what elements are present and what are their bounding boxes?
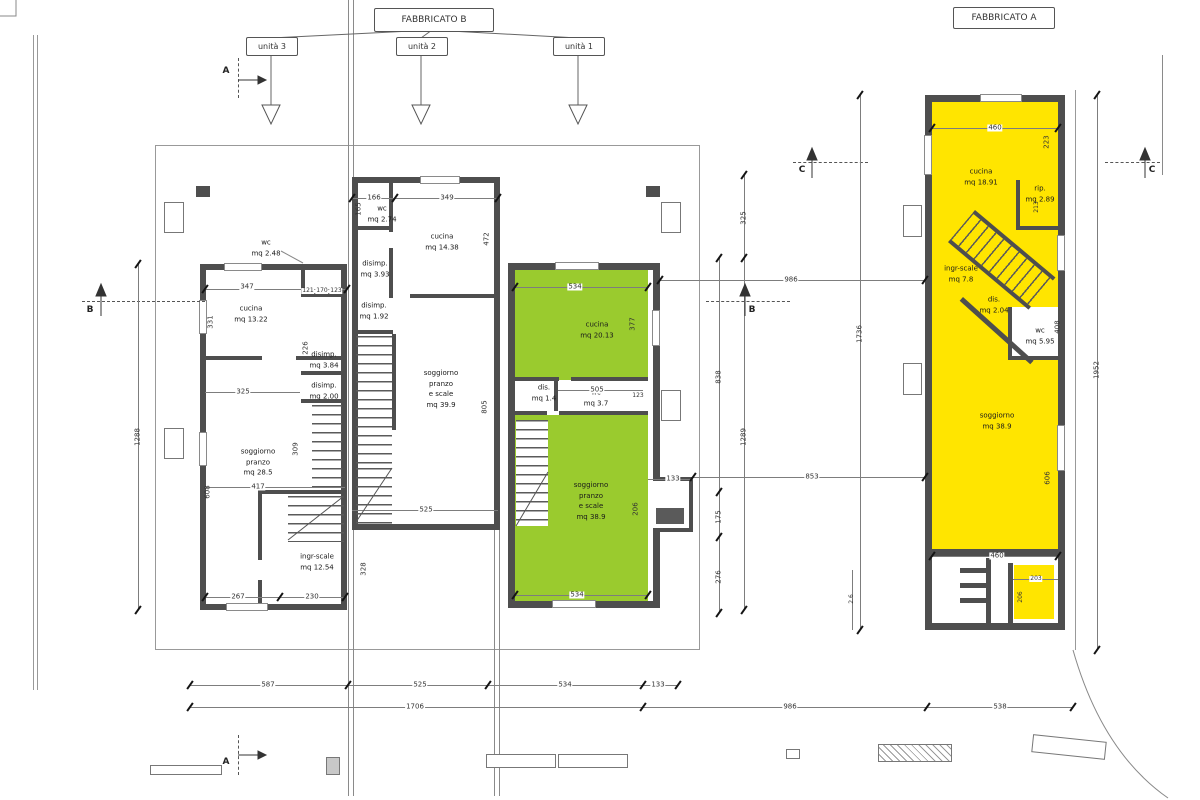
- dim-tick: [1093, 645, 1100, 654]
- boundary-pillar: [661, 390, 681, 421]
- wall-segment: [960, 583, 988, 588]
- boundary-pillar: [661, 202, 681, 233]
- dim-label: 175: [716, 509, 723, 524]
- staircase: [312, 405, 342, 487]
- dim-label: 534: [567, 284, 582, 291]
- arrow-down-icon: [412, 105, 430, 124]
- floor-plan: FABBRICATO B unità 3 unità 2 unità 1 FAB…: [0, 0, 1200, 800]
- section-c-cutline: [1105, 162, 1160, 163]
- dim-label: 1289: [741, 427, 748, 447]
- wall-segment: [960, 568, 988, 573]
- room-label-fa-dis: dis. mq 2.04: [979, 295, 1008, 316]
- section-c-arrowhead: [807, 148, 817, 160]
- wall-segment: [653, 532, 660, 608]
- dim-label: 276: [716, 569, 723, 584]
- dim-label: 226: [303, 341, 310, 354]
- bump-feature: [656, 508, 684, 524]
- dim-label: 525: [412, 682, 427, 689]
- dim-label: 1288: [135, 427, 142, 447]
- site-element: [1031, 734, 1106, 760]
- dim-tick: [134, 605, 141, 614]
- wall-segment: [960, 598, 988, 603]
- dim-label: 1952: [1094, 360, 1101, 380]
- section-a-cutline: [238, 735, 239, 775]
- dim-label: 203: [1029, 576, 1042, 582]
- wall-segment: [258, 490, 262, 560]
- room-label-u3-soggiorno: soggiorno pranzo mq 28.5: [241, 446, 276, 478]
- section-letter-a: A: [223, 757, 230, 767]
- wall-segment: [1008, 356, 1062, 360]
- unit-pointer-arrows: [262, 105, 587, 124]
- dim-label: 123: [631, 393, 644, 399]
- boundary-pillar: [903, 205, 922, 237]
- window-symbol: [1057, 425, 1065, 471]
- dim-tick: [740, 605, 747, 614]
- boundary-pillar: [164, 428, 184, 459]
- wall-segment: [689, 477, 693, 532]
- dim-label: 230: [304, 594, 319, 601]
- dim-label: 206: [1018, 591, 1024, 602]
- staircase: [516, 420, 548, 526]
- dim-label: 838: [716, 369, 723, 384]
- dim-label: 587: [260, 682, 275, 689]
- wall-segment: [389, 248, 393, 298]
- room-label-u3-cucina: cucina mq 13.22: [234, 304, 268, 325]
- tree-drop-lines: [271, 55, 578, 105]
- wall-segment: [1016, 226, 1062, 230]
- wall-segment: [571, 377, 648, 381]
- window-symbol: [552, 600, 596, 608]
- site-element: [326, 757, 340, 775]
- unit-3-tag-label: unità 3: [258, 42, 286, 51]
- dimension-line: [719, 258, 720, 613]
- dim-label: 1736: [857, 324, 864, 344]
- dim-label: 525: [418, 507, 433, 514]
- dim-label: 460: [989, 553, 1004, 560]
- dim-label: 331: [208, 315, 215, 328]
- dim-label: 2.6: [849, 594, 855, 604]
- boundary-line: [1162, 55, 1163, 175]
- dim-label: 805: [482, 400, 489, 413]
- staircase: [288, 496, 344, 542]
- dim-tick: [715, 608, 722, 617]
- wall-segment: [206, 356, 262, 360]
- wall-segment: [392, 334, 396, 430]
- room-label-u2-wc: wc mq 2.74: [367, 204, 396, 225]
- room-label-u3-disimp1: disimp. mq 3.84: [309, 350, 338, 371]
- dim-label: 213: [1034, 201, 1040, 212]
- section-letter-b: B: [749, 305, 756, 315]
- site-edge-line: [37, 35, 38, 690]
- site-edge-line-a: [1075, 90, 1076, 650]
- boundary-pillar: [903, 363, 922, 395]
- dim-label: 534: [557, 682, 572, 689]
- window-symbol: [652, 310, 660, 346]
- corner-mark: [0, 0, 16, 16]
- dim-label: 608: [205, 485, 212, 498]
- arrow-down-icon: [569, 105, 587, 124]
- dim-label: 408: [1055, 320, 1062, 333]
- fabbricato-b-title: FABBRICATO B: [401, 15, 466, 25]
- dimension-line: [744, 175, 745, 610]
- dim-tick: [674, 680, 681, 689]
- site-element: [786, 749, 800, 759]
- wall-segment: [1008, 307, 1012, 356]
- section-line-aa: [348, 0, 349, 796]
- dim-label: 328: [361, 562, 368, 575]
- staircase: [356, 336, 392, 468]
- wall-segment: [925, 623, 1065, 630]
- section-c-cutline: [793, 162, 868, 163]
- section-a-arrowhead: [258, 76, 266, 84]
- dim-label: 460: [987, 125, 1002, 132]
- room-label-fa-wc: wc mq 5.95: [1025, 326, 1054, 347]
- dim-label: 853: [804, 474, 819, 481]
- room-label-u3-wc: wc mq 2.48: [251, 238, 280, 259]
- room-label-fa-ingresso: ingr-scale mq 7.8: [944, 264, 978, 285]
- room-label-fa-soggiorno: soggiorno mq 38.9: [980, 411, 1015, 432]
- window-symbol: [1057, 235, 1065, 271]
- section-letter-a: A: [223, 66, 230, 76]
- section-letter-c: C: [799, 165, 806, 175]
- wall-segment: [515, 377, 559, 381]
- unit-2-tag: unità 2: [396, 37, 448, 56]
- unit-1-tag: unità 1: [553, 37, 605, 56]
- room-label-u1-soggiorno: soggiorno pranzo e scale mq 38.9: [574, 480, 609, 522]
- window-symbol: [924, 135, 932, 175]
- dim-label: 165: [356, 202, 363, 215]
- dim-label: 349: [439, 195, 454, 202]
- section-letter-b: B: [87, 305, 94, 315]
- section-a-cutline: [238, 58, 239, 98]
- site-edge-line: [33, 35, 34, 690]
- dimension-line: [190, 707, 1073, 708]
- wall-segment: [200, 604, 347, 610]
- dim-label: 472: [484, 232, 491, 245]
- dim-tick: [856, 625, 863, 634]
- site-element-hatched: [878, 744, 952, 762]
- dim-label: 538: [992, 704, 1007, 711]
- unit-3-tag: unità 3: [246, 37, 298, 56]
- room-label-fa-rip: rip. mq 2.89: [1025, 184, 1054, 205]
- room-label-u3-disimp2: disimp. mq 2.00: [309, 381, 338, 402]
- dim-label: 325: [235, 389, 250, 396]
- dim-label: 606: [1045, 471, 1052, 484]
- wall-segment: [410, 294, 494, 298]
- dimension-line: [860, 95, 861, 630]
- dim-label: 534: [569, 592, 584, 599]
- wall-segment: [515, 411, 547, 415]
- room-label-u3-ingresso: ingr-scale mq 12.54: [300, 552, 334, 573]
- dim-label: 206: [633, 502, 640, 515]
- arrow-down-icon: [262, 105, 280, 124]
- dim-label: 325: [741, 210, 748, 225]
- room-label-u2-soggiorno: soggiorno pranzo e scale mq 39.9: [424, 368, 459, 410]
- dim-label: 347: [239, 284, 254, 291]
- dim-label: 377: [630, 317, 637, 330]
- unit-2-tag-label: unità 2: [408, 42, 436, 51]
- wall-segment: [301, 371, 345, 375]
- pier-mark: [646, 186, 660, 197]
- wall-segment: [358, 226, 393, 230]
- dim-label: 123: [329, 288, 342, 294]
- wall-segment: [653, 263, 660, 481]
- wall-segment: [358, 330, 393, 334]
- window-symbol: [226, 603, 268, 611]
- wall-segment: [559, 411, 648, 415]
- dimension-line: [205, 597, 345, 598]
- fabbricato-b-title-box: FABBRICATO B: [374, 8, 494, 32]
- dim-label: 133: [665, 476, 680, 483]
- wall-segment: [494, 177, 500, 530]
- dim-label: 267: [230, 594, 245, 601]
- fabbricato-a-title-box: FABBRICATO A: [953, 7, 1055, 29]
- section-b-cutline: [82, 301, 205, 302]
- window-symbol: [555, 262, 599, 270]
- dimension-line: [205, 392, 300, 393]
- site-element: [150, 765, 222, 775]
- dim-label: 166: [366, 195, 381, 202]
- section-b-arrowhead: [740, 284, 750, 296]
- dim-tick: [1069, 702, 1076, 711]
- wall-segment: [258, 580, 262, 604]
- staircase: [356, 468, 392, 524]
- wall-segment: [1008, 563, 1013, 623]
- dim-label: 309: [293, 442, 300, 455]
- wall-segment: [508, 263, 515, 608]
- room-label-u2-disimp2: disimp. mq 1.92: [359, 301, 388, 322]
- room-label-u1-dis: dis. mq 1.4: [532, 383, 557, 404]
- window-symbol: [980, 94, 1022, 102]
- room-label-fa-cucina: cucina mq 18.91: [964, 167, 998, 188]
- site-element: [486, 754, 556, 768]
- dim-label: 133: [650, 682, 665, 689]
- pier-mark: [196, 186, 210, 197]
- room-label-u2-disimp1: disimp. mq 3.93: [360, 259, 389, 280]
- site-element: [558, 754, 628, 768]
- wall-segment: [1016, 180, 1020, 230]
- dim-label: 121: [301, 288, 314, 294]
- dim-label: 223: [1044, 135, 1051, 148]
- dim-label: 986: [782, 704, 797, 711]
- wall-segment: [258, 490, 345, 494]
- dim-label: 986: [783, 277, 798, 284]
- window-symbol: [224, 263, 262, 271]
- section-c-arrowhead: [1140, 148, 1150, 160]
- boundary-pillar: [164, 202, 184, 233]
- section-letter-c: C: [1149, 165, 1156, 175]
- dim-label: 1706: [405, 704, 425, 711]
- room-label-u2-cucina: cucina mq 14.38: [425, 232, 459, 253]
- site-curve: [1073, 650, 1168, 798]
- dim-label: 505: [589, 387, 604, 394]
- room-label-u1-cucina: cucina mq 20.13: [580, 320, 614, 341]
- wall-segment: [352, 524, 500, 530]
- unit-1-tag-label: unità 1: [565, 42, 593, 51]
- section-b-arrowhead: [96, 284, 106, 296]
- dimension-line: [205, 487, 345, 488]
- dim-label: 170: [315, 288, 328, 294]
- section-a-arrowhead: [258, 751, 266, 759]
- fabbricato-a-title: FABBRICATO A: [971, 13, 1036, 23]
- window-symbol: [420, 176, 460, 184]
- wall-segment: [200, 264, 347, 270]
- window-symbol: [199, 432, 207, 466]
- dim-label: 417: [250, 484, 265, 491]
